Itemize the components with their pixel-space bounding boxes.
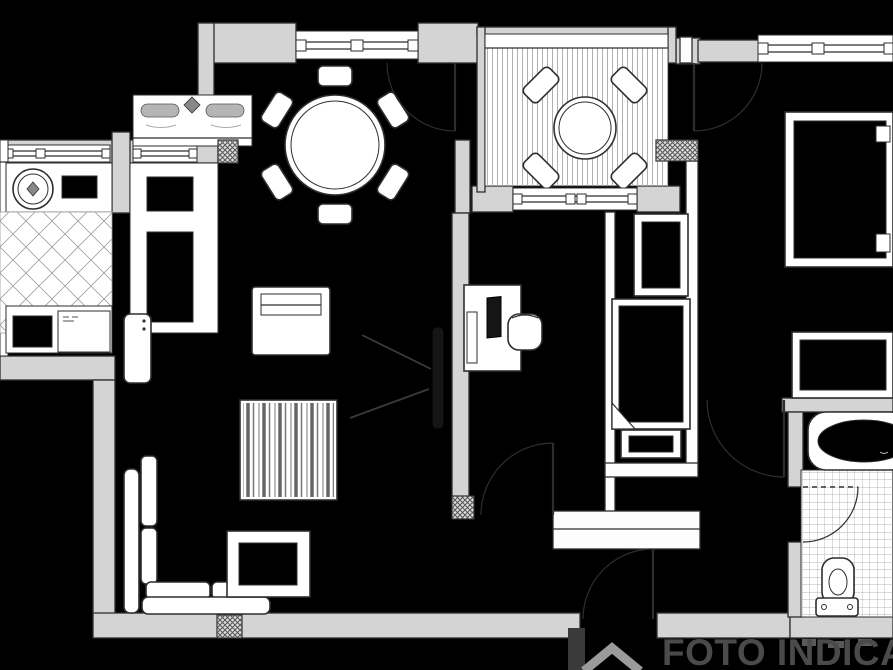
watermark: FOTO INDICATIVA [568, 628, 893, 670]
computer-monitor [487, 297, 501, 338]
living-room [124, 287, 444, 614]
striped-rug [240, 400, 337, 500]
dresser [792, 332, 893, 398]
pillar-entrance [217, 615, 242, 638]
wall-bedroom-top [698, 40, 760, 62]
wall-study-left-upper [455, 140, 470, 213]
window-kitchen-left [5, 145, 110, 162]
door-master-bedroom [694, 63, 762, 131]
bathtub [808, 412, 893, 470]
fridge-unit [124, 314, 151, 383]
wardrobe [785, 112, 893, 267]
window-master-bedroom [758, 35, 893, 62]
nightstand [634, 214, 688, 296]
wall-kitchen-divider [112, 132, 130, 213]
logo-mark [568, 628, 585, 670]
wall-kitchen-bottom [0, 356, 115, 380]
door-study [481, 443, 553, 515]
window-kitchen-right [133, 145, 197, 162]
desk-return [467, 312, 477, 363]
toilet [816, 558, 858, 616]
kitchen-cooktop [62, 176, 97, 198]
tv-view-line [350, 389, 429, 418]
wall-balcony-door-jamb [680, 37, 692, 63]
balcony-wall-left [477, 27, 485, 192]
pillar-kitchen [218, 140, 238, 163]
dining-area [260, 66, 411, 224]
cabinet-slot-upper [147, 177, 193, 211]
wall-living-left [93, 380, 115, 617]
tv-view-line [362, 335, 431, 369]
single-bed [612, 299, 690, 429]
house-roof-logo-icon [584, 648, 640, 670]
entrance-door [583, 549, 653, 619]
wall-hallway-top [553, 511, 700, 549]
wall-balcony-left-jamb [418, 23, 478, 63]
outdoor-basin-fixture [133, 95, 252, 146]
desk-chair [508, 314, 542, 350]
sideboard [252, 287, 330, 355]
french-window-balcony [513, 188, 637, 210]
wall-bottom-left [93, 613, 580, 638]
wall-bathroom-top [782, 398, 893, 412]
balcony-wall-right [668, 27, 676, 63]
watermark-text: FOTO INDICATIVA [662, 632, 893, 670]
wall-single-bedroom-bottom [605, 463, 698, 477]
under-bed-bench [621, 430, 681, 458]
bathroom [801, 412, 893, 648]
wall-tv [350, 327, 444, 429]
pillar-study [452, 496, 474, 519]
balcony [477, 27, 676, 192]
cabinet-slot-lower [147, 232, 193, 322]
kitchen-appliance-slot [13, 316, 52, 347]
study [464, 285, 542, 371]
floor-plan-canvas: FOTO INDICATIVA [0, 0, 893, 670]
single-bedroom [612, 214, 690, 458]
master-bedroom [785, 112, 893, 398]
door-hallway-bedroom [707, 400, 784, 477]
pillar-balcony [656, 140, 698, 161]
window-dining [296, 31, 418, 59]
coffee-table [227, 531, 310, 597]
wall-french-window-right [637, 186, 680, 212]
